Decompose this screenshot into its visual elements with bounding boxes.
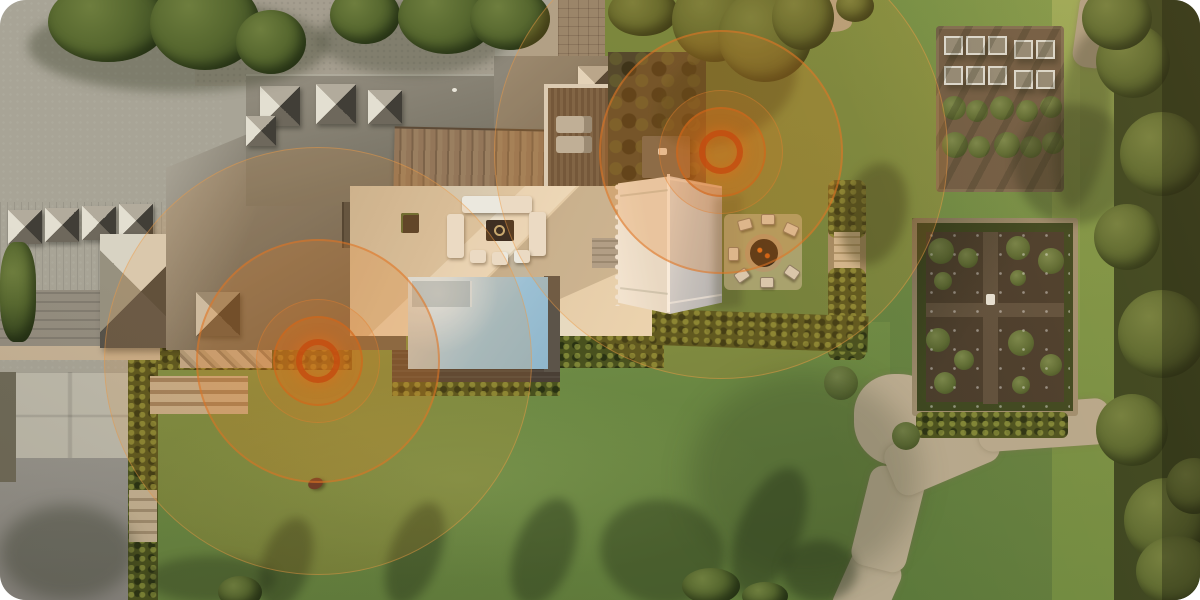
ripple-ring bbox=[256, 299, 380, 423]
stage bbox=[0, 0, 1200, 600]
ripple-ring bbox=[659, 90, 783, 214]
ripple-ring bbox=[196, 239, 440, 483]
ripple-core-ring bbox=[296, 339, 340, 383]
coverage-ripple-right-patio[interactable] bbox=[0, 0, 1200, 600]
ripple-ring bbox=[676, 107, 766, 197]
coverage-ripples bbox=[0, 0, 1200, 600]
ripple-ring bbox=[494, 0, 948, 379]
ripple-ring bbox=[273, 316, 363, 406]
ripple-ring bbox=[104, 147, 532, 575]
coverage-ripple-left-lawn[interactable] bbox=[0, 0, 1200, 600]
ripple-ring bbox=[599, 30, 843, 274]
ripple-core-ring bbox=[699, 130, 743, 174]
